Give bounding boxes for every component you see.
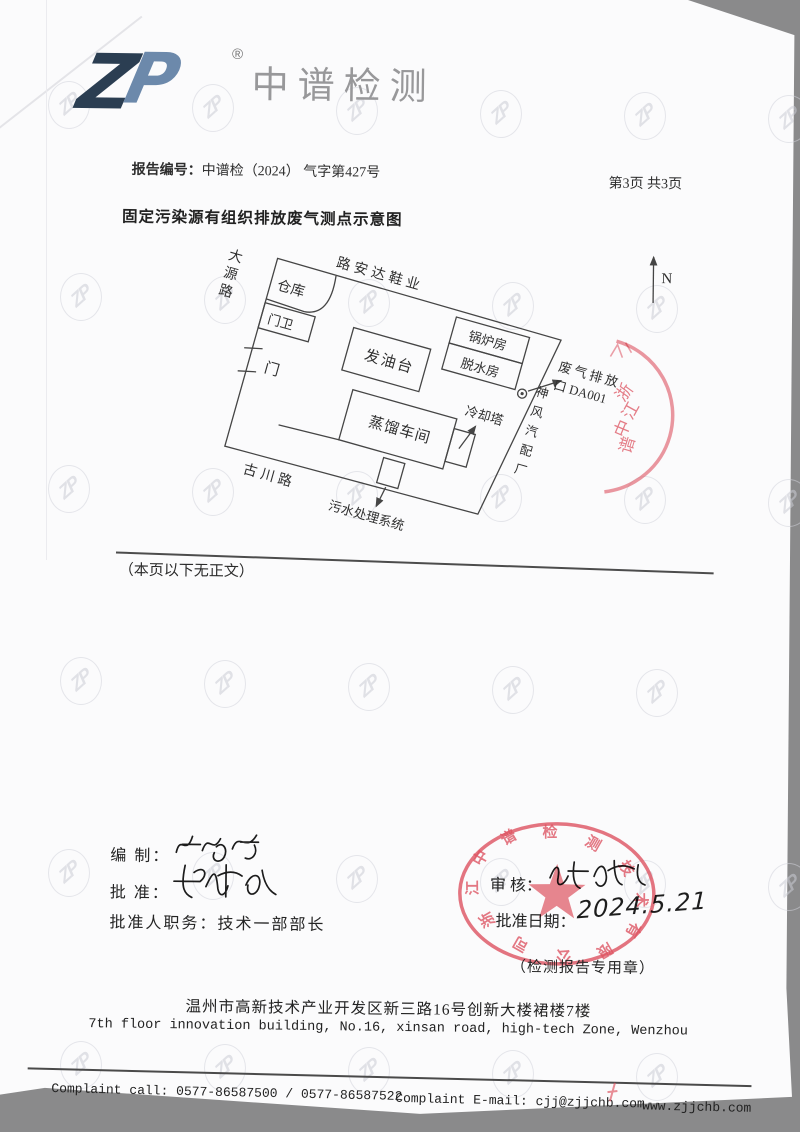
guard-room-label: 门卫	[266, 311, 295, 332]
stamp-ring-char: 测	[582, 832, 604, 855]
stamp-ring-char: 有	[622, 919, 645, 941]
stamp-star-icon	[528, 864, 586, 919]
scanned-report-page: ZPZPZPZPZPZPZPZPZPZPZPZPZPZPZPZPZPZPZPZP…	[0, 0, 800, 1132]
neighbor-right-label: 神 风 汽 配 厂	[513, 385, 551, 479]
svg-text:厂: 厂	[513, 462, 529, 479]
svg-text:大: 大	[227, 247, 245, 266]
sewage-arrow	[376, 486, 386, 507]
stamp-ring-char: 江	[464, 880, 482, 895]
gate-label: 门	[262, 359, 281, 379]
svg-text:路: 路	[217, 282, 235, 301]
outlet-point-dot	[520, 392, 524, 396]
report-number-label: 报告编号：	[132, 163, 202, 179]
report-number-line: 报告编号：中谱检（2024） 气字第427号	[132, 159, 381, 182]
brand-name: 中谱检测	[251, 54, 436, 110]
complaint-phone: Complaint call: 0577-86587500 / 0577-865…	[51, 1081, 402, 1104]
road-left-label: 大 源 路	[217, 247, 245, 301]
report-number-value: 中谱检（2024） 气字第427号	[202, 163, 381, 180]
svg-text:神: 神	[534, 385, 550, 402]
approved-by-label: 批 准：	[110, 878, 170, 903]
svg-text:风: 风	[529, 404, 545, 421]
north-arrow: N	[653, 257, 673, 303]
stamp-ring-char: 术	[632, 892, 650, 907]
page-content: Z P ® 中谱检测 报告编号：中谱检（2024） 气字第427号 第3页 共3…	[0, 0, 800, 1132]
sewage-box	[377, 458, 405, 489]
road-top-label: 路安达鞋业	[335, 255, 426, 295]
approver-title-row: 批准人职务：技术一部部长	[109, 908, 325, 935]
stamp-ring-char: 浙	[476, 908, 499, 930]
stamp-ring-char: 技	[615, 857, 639, 880]
prepared-by-label: 编 制：	[110, 841, 170, 866]
svg-text:谱: 谱	[616, 434, 639, 456]
approved-by-row: 批 准：	[110, 865, 326, 905]
no-further-text-note: （本页以下无正文）	[119, 559, 254, 582]
red-stamp-smudge	[606, 1082, 618, 1102]
svg-text:源: 源	[222, 265, 240, 284]
website-url: www.zjjchb.com	[642, 1098, 752, 1115]
registered-trademark-icon: ®	[232, 46, 243, 63]
stamp-caption: （检测报告专用章）	[485, 955, 681, 978]
svg-text:汽: 汽	[524, 422, 541, 440]
cooling-tower-arrow	[459, 424, 476, 452]
site-plan-diagram: 仓库 门卫 门 发油台 锅炉房 脱水房 废	[174, 225, 798, 551]
approver-title-value: 技术一部部长	[217, 916, 325, 934]
dewater-room-label: 脱水房	[459, 355, 501, 380]
road-bottom-label: 古川路	[241, 461, 297, 491]
north-label: N	[661, 271, 672, 287]
svg-text:配: 配	[518, 442, 534, 459]
warehouse-label: 仓库	[275, 278, 306, 301]
page-indicator: 第3页 共3页	[608, 172, 682, 193]
distillation-label: 蒸馏车间	[367, 414, 433, 448]
stamp-ring-char: 检	[542, 823, 557, 841]
inner-wall-line	[279, 423, 339, 442]
stamp-ring-char: 司	[510, 933, 531, 955]
cooling-tower-label: 冷却塔	[463, 403, 505, 428]
approved-by-signature	[170, 859, 287, 904]
signature-block: 编 制： 批 准： 批准人职务：技术一部部长	[109, 828, 326, 935]
approver-title-label: 批准人职务：	[109, 914, 217, 932]
stamp-ring-char: 中	[469, 847, 492, 869]
sewage-label: 污水处理系统	[327, 498, 406, 534]
zp-logo: Z P	[59, 38, 240, 126]
oil-platform-label: 发油台	[362, 347, 416, 377]
